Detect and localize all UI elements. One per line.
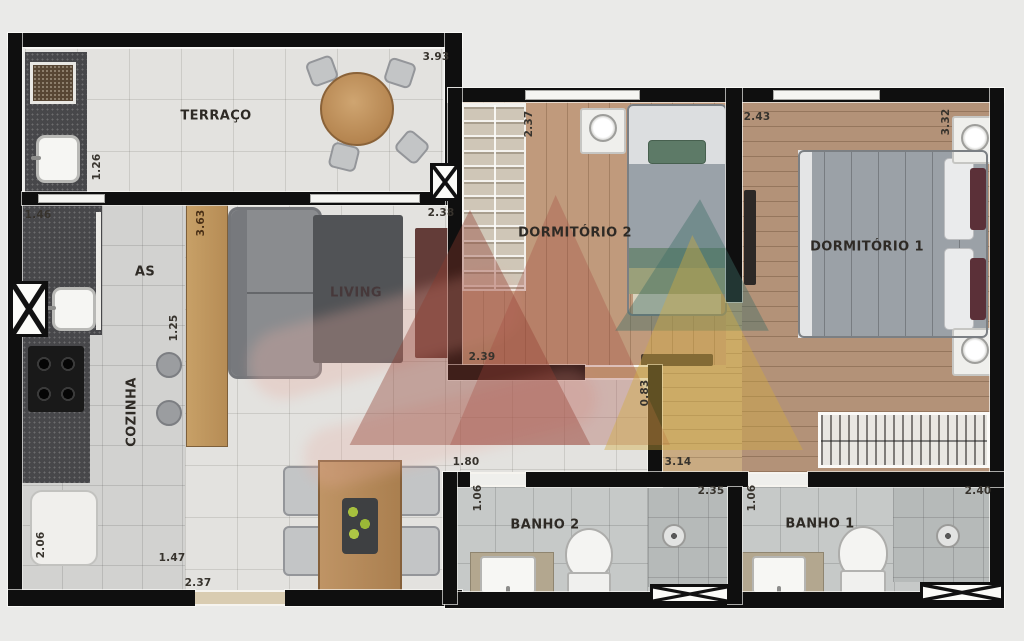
room-label-dorm2: DORMITÓRIO 2 xyxy=(518,226,632,241)
dim-balcao: 3.63 xyxy=(195,210,207,237)
dining-chair xyxy=(396,526,440,576)
shaft-x-icon xyxy=(10,281,48,337)
fruit-tray-icon xyxy=(342,498,378,554)
bar-counter xyxy=(186,205,228,447)
wall-right-outer xyxy=(990,88,1004,606)
dim-hall-bottom: 3.14 xyxy=(665,456,692,468)
showerhead-icon xyxy=(662,524,686,548)
floor-circulacao-jantar xyxy=(460,365,650,472)
room-label-dorm1: DORMITÓRIO 1 xyxy=(810,240,924,255)
dim-entrada: 2.37 xyxy=(185,577,212,589)
wall-bottom-left xyxy=(8,590,195,606)
room-label-terraco: TERRAÇO xyxy=(180,109,251,124)
room-label-banho1: BANHO 1 xyxy=(785,517,854,532)
sofa xyxy=(228,207,322,379)
window-dorm1 xyxy=(773,90,880,100)
door-dorm2-threshold xyxy=(585,365,648,380)
cooktop-icon xyxy=(28,346,84,412)
dim-banho1-top: 2.40 xyxy=(965,485,992,497)
single-bed-frame xyxy=(627,104,727,316)
tv-panel-dorm1 xyxy=(744,190,756,285)
dim-dorm1-top: 2.43 xyxy=(744,111,771,123)
service-sink xyxy=(52,287,96,331)
room-label-living: LIVING xyxy=(330,286,382,301)
dim-living-top: 2.38 xyxy=(428,207,455,219)
dim-banho2-side: 1.06 xyxy=(472,485,484,512)
dim-hall-side: 0.83 xyxy=(639,380,651,407)
dim-cozinha-side: 2.06 xyxy=(35,532,47,559)
wall-dorm2-bottom xyxy=(448,365,585,380)
entry-door-threshold xyxy=(195,590,285,606)
grill-icon xyxy=(30,62,76,104)
dim-dorm2-side: 2.37 xyxy=(523,111,535,138)
dim-banho1-side: 1.06 xyxy=(746,485,758,512)
shower-box-banho2 xyxy=(648,487,728,587)
dim-terraco-width: 3.93 xyxy=(423,51,450,63)
sliding-door-terraco xyxy=(310,194,420,203)
dim-dorm2-bottom: 2.39 xyxy=(469,351,496,363)
lamp-icon xyxy=(961,336,989,364)
wall-dorm-divider xyxy=(726,88,742,302)
wall-dorm2-left xyxy=(448,88,462,380)
service-shelf xyxy=(96,212,101,330)
wardrobe-dorm1 xyxy=(818,412,990,468)
dim-cozinha-bottom: 1.47 xyxy=(159,552,186,564)
terrace-glass-rail xyxy=(25,47,443,49)
window-servico xyxy=(38,194,105,203)
bar-stool xyxy=(156,400,182,426)
shaft-x-icon xyxy=(650,584,730,604)
terrace-sink xyxy=(36,135,80,183)
room-label-servico: AS xyxy=(135,265,155,280)
terrace-sink-faucet-icon xyxy=(31,156,41,160)
dining-chair xyxy=(396,466,440,516)
window-dorm2 xyxy=(525,90,640,100)
dim-churrasqueira: 1.26 xyxy=(91,154,103,181)
shaft-x-icon xyxy=(430,163,460,201)
room-label-banho2: BANHO 2 xyxy=(510,518,579,533)
dim-banho2-top: 2.35 xyxy=(698,485,725,497)
wall-banho-divider xyxy=(728,487,742,604)
showerhead-icon xyxy=(936,524,960,548)
lamp-icon xyxy=(961,124,989,152)
dim-servico-width: 1.46 xyxy=(25,209,52,221)
lamp-icon xyxy=(589,114,617,142)
dim-sala-bottom: 1.80 xyxy=(453,456,480,468)
terrace-table xyxy=(320,72,394,146)
dim-balcao-lower: 1.25 xyxy=(168,315,180,342)
bar-stool xyxy=(156,352,182,378)
floor-plan: TERRAÇO AS COZINHA LIVING DORMITÓRIO 2 D… xyxy=(0,0,1024,641)
floor-hall-door-dorm1 xyxy=(726,302,742,368)
wall-terraco-top xyxy=(8,33,462,47)
shaft-x-icon xyxy=(920,582,1004,603)
dim-dorm1-side: 3.32 xyxy=(940,109,952,136)
wall-bottom-entry xyxy=(285,590,462,606)
room-label-cozinha: COZINHA xyxy=(125,377,140,446)
wardrobe-dorm2 xyxy=(462,103,526,291)
wall-banho2-left xyxy=(443,472,457,604)
